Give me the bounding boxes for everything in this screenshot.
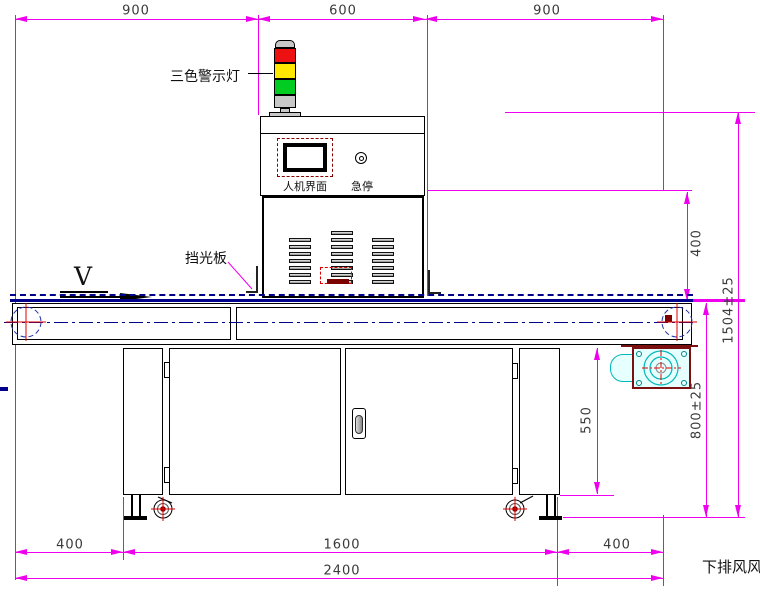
overlay-graphics — [0, 0, 760, 599]
light-shield-leader — [228, 262, 252, 289]
roller-left-icon — [6, 303, 46, 341]
fan-icon — [637, 350, 687, 386]
roller-right-icon — [657, 303, 697, 341]
caster-left-icon — [151, 497, 175, 521]
engineering-drawing: 900 600 900 400 800±25 1504±25 550 400 1… — [0, 0, 760, 599]
caster-right-icon — [503, 496, 533, 521]
